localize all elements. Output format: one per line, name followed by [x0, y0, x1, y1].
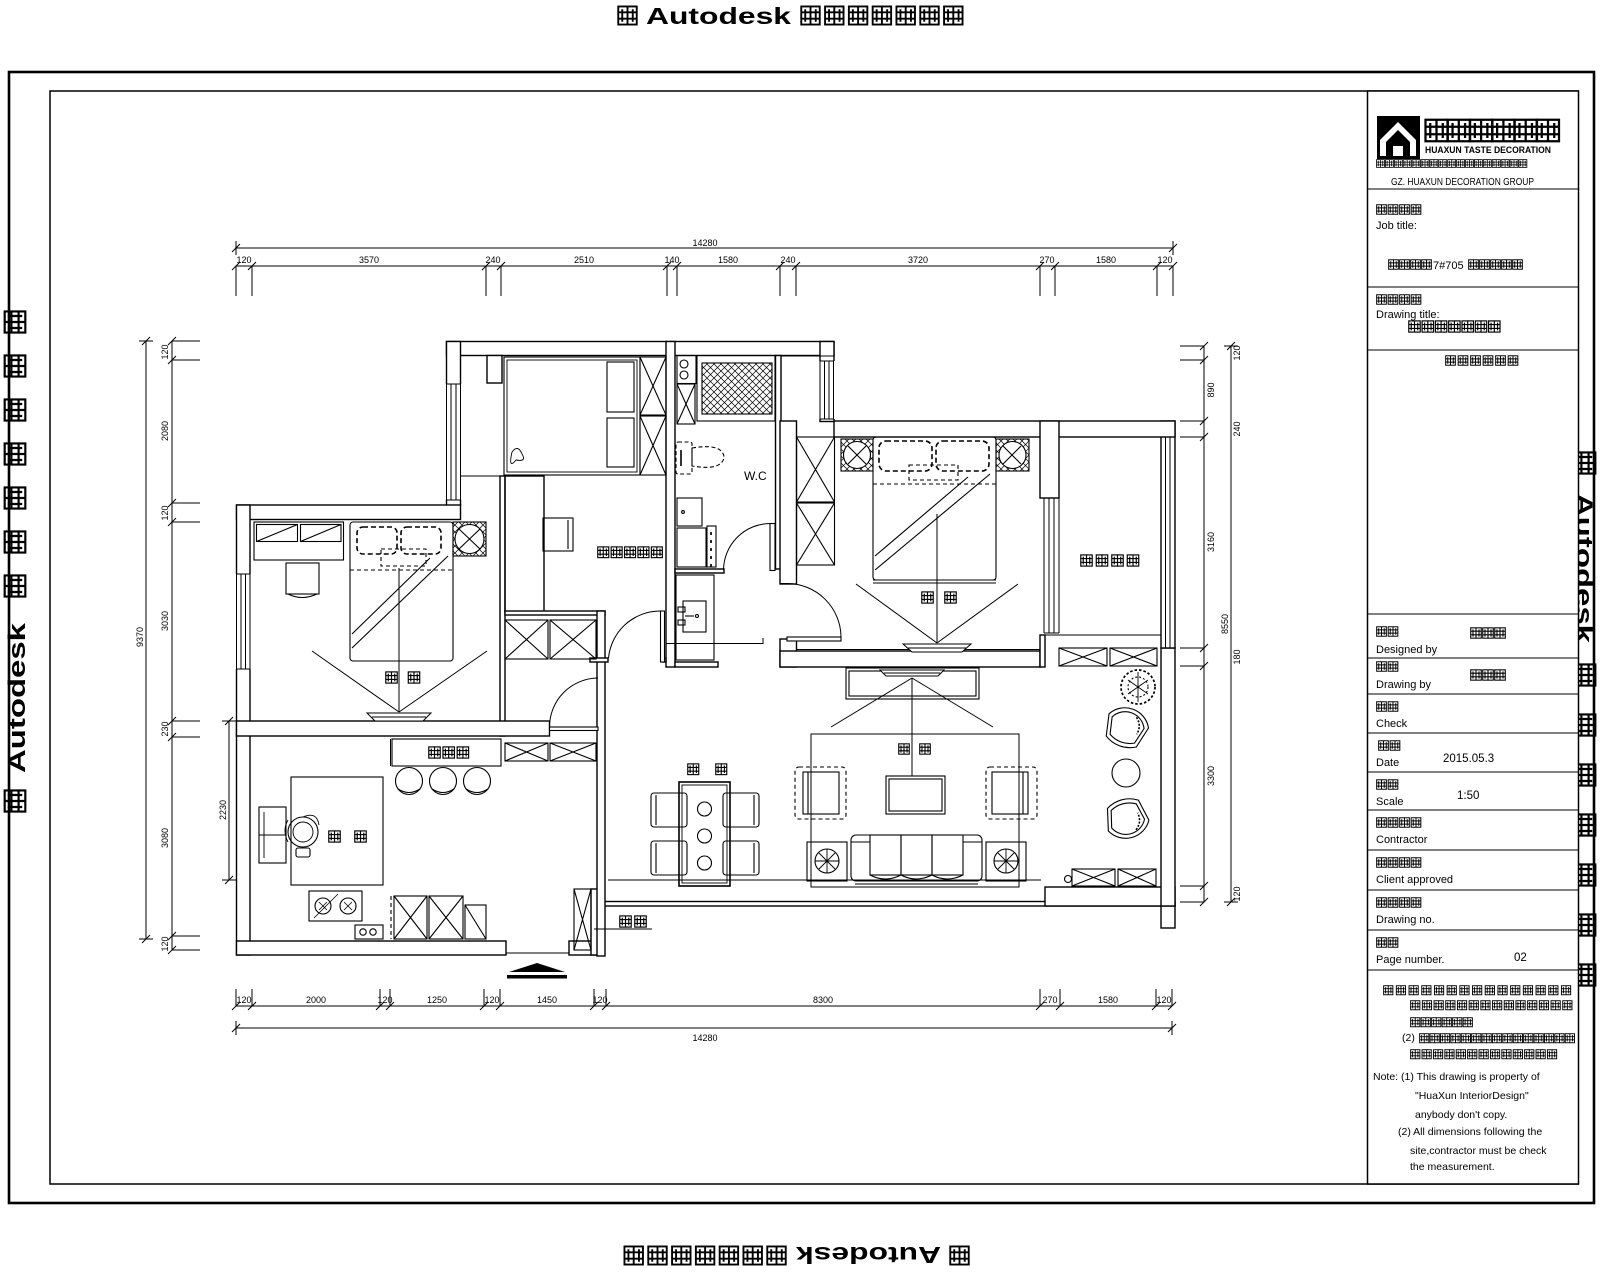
svg-text:1580: 1580 — [1098, 995, 1118, 1005]
svg-text:120: 120 — [160, 505, 170, 520]
svg-text:3160: 3160 — [1206, 532, 1216, 552]
svg-text:2230: 2230 — [218, 800, 228, 820]
svg-text:2080: 2080 — [160, 421, 170, 441]
svg-text:1250: 1250 — [427, 995, 447, 1005]
svg-text:9370: 9370 — [135, 627, 145, 647]
svg-text:3720: 3720 — [908, 255, 928, 265]
svg-text:Client approved: Client approved — [1376, 874, 1453, 886]
svg-text:Job title:: Job title: — [1376, 220, 1417, 232]
svg-text:Autodesk: Autodesk — [795, 1242, 941, 1268]
svg-text:14280: 14280 — [692, 238, 717, 248]
svg-text:120: 120 — [1157, 255, 1172, 265]
svg-text:14280: 14280 — [692, 1033, 717, 1043]
svg-text:890: 890 — [1206, 382, 1216, 397]
svg-text:120: 120 — [236, 255, 251, 265]
svg-text:120: 120 — [1232, 345, 1242, 360]
svg-text:240: 240 — [485, 255, 500, 265]
svg-text:site,contractor must be check: site,contractor must be check — [1410, 1145, 1547, 1157]
svg-text:Drawing title:: Drawing title: — [1376, 309, 1440, 321]
svg-text:230: 230 — [160, 721, 170, 736]
svg-text:(2) All dimensions following t: (2) All dimensions following the — [1398, 1126, 1542, 1138]
svg-text:"HuaXun InteriorDesign": "HuaXun InteriorDesign" — [1415, 1090, 1529, 1102]
svg-text:Drawing by: Drawing by — [1376, 679, 1432, 691]
svg-text:120: 120 — [484, 995, 499, 1005]
svg-text:Autodesk: Autodesk — [646, 3, 792, 29]
svg-text:120: 120 — [377, 995, 392, 1005]
svg-text:Check: Check — [1376, 718, 1408, 730]
svg-text:the measurement.: the measurement. — [1410, 1161, 1495, 1173]
svg-text:Page number.: Page number. — [1376, 954, 1445, 966]
svg-text:Designed by: Designed by — [1376, 644, 1438, 656]
svg-text:2000: 2000 — [306, 995, 326, 1005]
svg-text:Date: Date — [1376, 757, 1399, 769]
svg-text:2015.05.3: 2015.05.3 — [1443, 753, 1494, 765]
svg-text:120: 120 — [160, 344, 170, 359]
svg-text:270: 270 — [1039, 255, 1054, 265]
svg-text:3570: 3570 — [359, 255, 379, 265]
svg-text:120: 120 — [160, 936, 170, 951]
svg-text:240: 240 — [1232, 421, 1242, 436]
svg-text:Scale: Scale — [1376, 796, 1404, 808]
svg-text:02: 02 — [1514, 952, 1527, 964]
svg-text:1580: 1580 — [718, 255, 738, 265]
svg-text:120: 120 — [1156, 995, 1171, 1005]
svg-text:Note: (1) This drawing is prop: Note: (1) This drawing is property of — [1373, 1071, 1540, 1083]
svg-text:120: 120 — [236, 995, 251, 1005]
svg-text:3030: 3030 — [160, 611, 170, 631]
svg-text:2510: 2510 — [574, 255, 594, 265]
svg-text:anybody don't copy.: anybody don't copy. — [1415, 1109, 1507, 1121]
svg-text:270: 270 — [1042, 995, 1057, 1005]
svg-text:W.C: W.C — [744, 469, 767, 483]
svg-text:140: 140 — [664, 255, 679, 265]
svg-text:8550: 8550 — [1220, 614, 1230, 634]
svg-text:180: 180 — [1232, 649, 1242, 664]
svg-text:HUAXUN TASTE DECORATION: HUAXUN TASTE DECORATION — [1425, 145, 1551, 155]
svg-text:240: 240 — [780, 255, 795, 265]
svg-text:1450: 1450 — [537, 995, 557, 1005]
svg-text:1580: 1580 — [1096, 255, 1116, 265]
svg-text:3300: 3300 — [1206, 766, 1216, 786]
svg-text:(2): (2) — [1402, 1032, 1415, 1044]
svg-text:120: 120 — [592, 995, 607, 1005]
svg-text:Drawing no.: Drawing no. — [1376, 914, 1435, 926]
svg-text:GZ. HUAXUN DECORATION GROUP: GZ. HUAXUN DECORATION GROUP — [1391, 177, 1534, 188]
svg-text:8300: 8300 — [813, 995, 833, 1005]
svg-text:1:50: 1:50 — [1457, 790, 1479, 802]
svg-text:3080: 3080 — [160, 828, 170, 848]
svg-text:7#705: 7#705 — [1433, 260, 1464, 272]
svg-text:Contractor: Contractor — [1376, 834, 1428, 846]
